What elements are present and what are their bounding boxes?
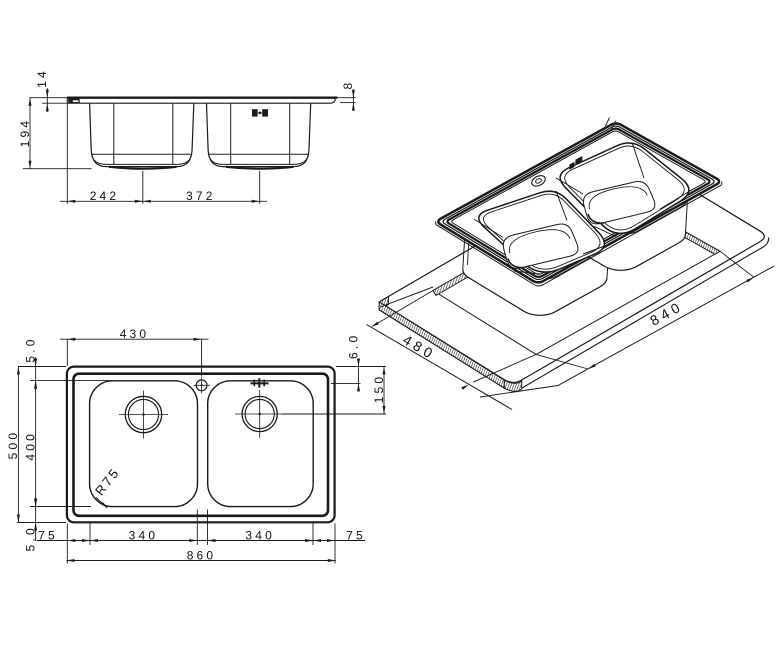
svg-text:400: 400: [23, 431, 37, 461]
svg-text:372: 372: [186, 189, 216, 203]
svg-text:5.0: 5.0: [23, 336, 37, 362]
svg-text:340: 340: [129, 529, 159, 543]
svg-text:5.0: 5.0: [23, 525, 37, 551]
svg-text:500: 500: [6, 430, 20, 460]
svg-text:14: 14: [35, 68, 49, 88]
svg-text:242: 242: [90, 189, 120, 203]
svg-text:150: 150: [372, 374, 386, 404]
svg-text:860: 860: [187, 548, 217, 562]
svg-text:75: 75: [38, 529, 58, 543]
svg-text:194: 194: [18, 118, 32, 148]
svg-text:430: 430: [120, 327, 150, 341]
svg-text:75: 75: [346, 529, 366, 543]
svg-text:6.0: 6.0: [346, 333, 360, 359]
svg-text:8: 8: [341, 80, 355, 90]
svg-text:340: 340: [245, 529, 275, 543]
